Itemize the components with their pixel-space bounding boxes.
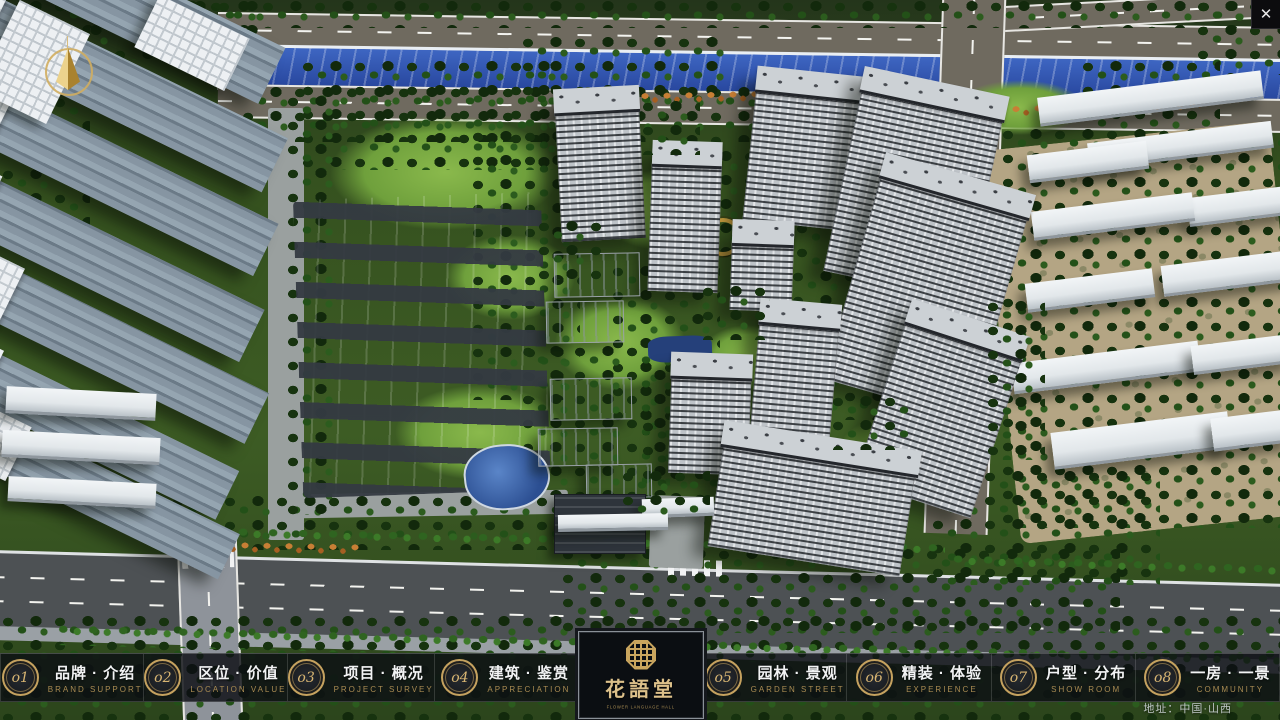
- nav-item-text: 一房 · 一景COMMUNITY: [1190, 662, 1270, 694]
- tower-roof: [759, 298, 842, 332]
- nav-item-text: 园林 · 景观GARDEN STREET: [751, 662, 845, 694]
- scene-rs: [7, 476, 156, 509]
- tower-roof: [553, 85, 640, 116]
- nav-item-text: 区位 · 价值LOCATION VALUE: [190, 662, 286, 694]
- nav-item-label-en: COMMUNITY: [1197, 685, 1264, 694]
- nav-item-number-badge: o1: [2, 659, 39, 696]
- scene-wl: [538, 427, 619, 466]
- scene-trees: [620, 470, 710, 515]
- nav-item-o1[interactable]: o1品牌 · 介绍BRAND SUPPORT: [0, 654, 144, 701]
- nav-item-label-en: LOCATION VALUE: [190, 685, 286, 694]
- project-subtitle: FLOWER LANGUAGE HALL: [607, 705, 675, 709]
- nav-item-label-en: PROJECT SURVEY: [334, 685, 434, 694]
- project-logo-panel[interactable]: 花語堂 FLOWER LANGUAGE HALL: [578, 631, 704, 719]
- project-seal-pattern: [628, 642, 654, 668]
- nav-item-number-badge: o8: [1144, 659, 1181, 696]
- nav-item-label-en: EXPERIENCE: [906, 685, 978, 694]
- nav-item-o5[interactable]: o5园林 · 景观GARDEN STREET: [702, 654, 847, 701]
- nav-item-label-zh: 户型 · 分布: [1046, 662, 1126, 683]
- scene-trees: [830, 395, 910, 450]
- nav-item-label-en: APPRECIATION: [487, 685, 570, 694]
- nav-item-o7[interactable]: o7户型 · 分布SHOW ROOM: [992, 654, 1136, 701]
- project-seal-icon: [626, 640, 656, 670]
- nav-item-text: 品牌 · 介绍BRAND SUPPORT: [48, 662, 143, 694]
- nav-item-label-zh: 建筑 · 鉴赏: [489, 662, 569, 683]
- nav-item-number-badge: o6: [856, 659, 893, 696]
- nav-item-label-en: SHOW ROOM: [1051, 685, 1121, 694]
- masterplan-app: ✕ o1品牌 · 介绍BRAND SUPPORTo2区位 · 价值LOCATIO…: [0, 0, 1280, 720]
- nav-item-number-badge: o5: [705, 659, 742, 696]
- nav-item-text: 精装 · 体验EXPERIENCE: [902, 662, 982, 694]
- nav-item-number-badge: o4: [441, 659, 478, 696]
- nav-item-o8[interactable]: o8一房 · 一景COMMUNITY: [1136, 654, 1280, 701]
- scene-wl: [550, 377, 633, 420]
- close-button[interactable]: ✕: [1251, 0, 1280, 29]
- nav-item-number-badge: o7: [1000, 659, 1037, 696]
- address-text: 地址：中国·山西: [1143, 700, 1232, 716]
- tower-roof: [732, 219, 795, 248]
- nav-item-label-zh: 品牌 · 介绍: [55, 662, 135, 683]
- tower-roof: [671, 352, 753, 382]
- nav-item-o4[interactable]: o4建筑 · 鉴赏APPRECIATION: [435, 654, 578, 701]
- nav-group-left: o1品牌 · 介绍BRAND SUPPORTo2区位 · 价值LOCATION …: [0, 654, 578, 701]
- project-title: 花語堂: [605, 673, 677, 702]
- nav-item-label-zh: 精装 · 体验: [902, 662, 982, 683]
- nav-item-number-badge: o2: [144, 659, 181, 696]
- nav-item-label-zh: 园林 · 景观: [757, 662, 837, 683]
- scene-trees: [985, 300, 1045, 460]
- close-icon: ✕: [1260, 5, 1273, 23]
- scene-rs: [558, 513, 668, 532]
- compass-icon: [40, 36, 96, 98]
- scene-trees: [640, 100, 700, 155]
- scene-ct: [647, 145, 722, 293]
- nav-item-label-en: BRAND SUPPORT: [48, 685, 143, 694]
- nav-item-label-zh: 项目 · 概况: [343, 662, 423, 683]
- scene-wl: [546, 300, 625, 343]
- nav-item-label-zh: 区位 · 价值: [198, 662, 278, 683]
- nav-item-text: 项目 · 概况PROJECT SURVEY: [334, 662, 434, 694]
- masterplan-render: [0, 0, 1280, 720]
- scene-trees: [536, 220, 606, 280]
- nav-item-o2[interactable]: o2区位 · 价值LOCATION VALUE: [144, 654, 287, 701]
- nav-group-right: o5园林 · 景观GARDEN STREETo6精装 · 体验EXPERIENC…: [702, 654, 1280, 701]
- nav-item-text: 户型 · 分布SHOW ROOM: [1046, 662, 1126, 694]
- nav-item-o6[interactable]: o6精装 · 体验EXPERIENCE: [847, 654, 991, 701]
- nav-item-text: 建筑 · 鉴赏APPRECIATION: [487, 662, 570, 694]
- scene-trees: [700, 285, 770, 340]
- tower-roof-cap: [0, 319, 4, 408]
- nav-item-label-zh: 一房 · 一景: [1190, 662, 1270, 683]
- nav-item-o3[interactable]: o3项目 · 概况PROJECT SURVEY: [288, 654, 435, 701]
- nav-item-number-badge: o3: [288, 659, 325, 696]
- nav-item-label-en: GARDEN STREET: [751, 685, 845, 694]
